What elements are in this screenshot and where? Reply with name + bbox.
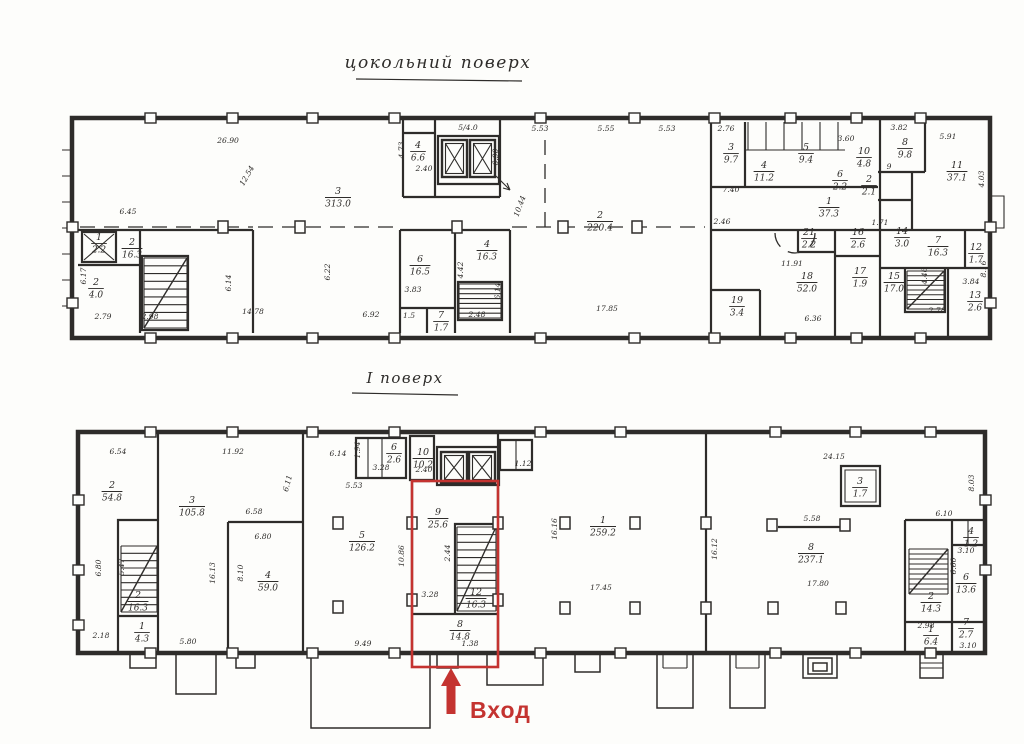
- svg-text:8: 8: [808, 542, 814, 553]
- wall-pilaster: [73, 495, 84, 505]
- room-label: 39.7: [723, 142, 739, 166]
- svg-text:237.1: 237.1: [797, 556, 824, 566]
- first-floor-internal-walls: [118, 432, 985, 653]
- svg-text:2.1: 2.1: [861, 188, 876, 198]
- structural-column: [558, 221, 568, 233]
- svg-text:12: 12: [970, 242, 982, 253]
- wall-pilaster: [851, 333, 862, 343]
- wall-pilaster: [307, 113, 318, 123]
- wall-pilaster: [535, 648, 546, 658]
- structural-column: [560, 602, 570, 614]
- svg-text:37.3: 37.3: [819, 210, 839, 220]
- svg-text:21: 21: [802, 227, 815, 238]
- dimension-label: 5.91: [940, 132, 957, 141]
- svg-text:1.7: 1.7: [853, 490, 868, 500]
- floor-plan-drawing: цокольний поверх І поверх: [0, 0, 1024, 744]
- room-label: 411.2: [754, 160, 775, 184]
- dimension-label: 4.73: [397, 141, 406, 159]
- svg-text:1.9: 1.9: [853, 280, 868, 290]
- svg-text:2.2: 2.2: [91, 246, 107, 256]
- dimension-label: 3.10: [960, 641, 977, 650]
- wall-pilaster: [629, 113, 640, 123]
- svg-text:6: 6: [391, 442, 397, 453]
- wall-pilaster: [227, 333, 238, 343]
- first-floor-title-underline: [352, 393, 458, 395]
- dimension-label: 26.90: [216, 136, 239, 145]
- wall-pilaster: [629, 333, 640, 343]
- svg-text:6: 6: [417, 254, 423, 265]
- dimension-label: 3.84: [963, 277, 980, 286]
- wall-pilaster: [67, 298, 78, 308]
- dimension-label: 5.53: [346, 481, 363, 490]
- svg-text:5: 5: [359, 530, 365, 541]
- svg-text:2.6: 2.6: [967, 304, 983, 314]
- dimension-label: 7.40: [723, 185, 740, 194]
- svg-text:9.8: 9.8: [898, 151, 913, 161]
- room-label: 1216.3: [466, 587, 487, 611]
- dimension-label: 2.18: [92, 631, 110, 640]
- dimension-label: 12.54: [238, 164, 257, 187]
- wall-pilaster: [227, 113, 238, 123]
- svg-text:2: 2: [128, 237, 135, 248]
- svg-text:16: 16: [852, 227, 864, 238]
- svg-text:220.4: 220.4: [586, 224, 613, 234]
- first-floor-labels: 254.83105.8459.0216.314.35126.262.61010.…: [92, 441, 979, 650]
- room-label: 212.2: [801, 227, 817, 251]
- room-label: 104.8: [856, 146, 872, 170]
- dimension-label: 1.71: [872, 218, 889, 227]
- dimension-label: 17.80: [807, 579, 829, 588]
- dimension-label: 2.76: [717, 124, 735, 133]
- wall-pilaster: [980, 565, 991, 575]
- room-label: 459.0: [258, 570, 279, 594]
- dimension-label: 2.46: [713, 217, 731, 226]
- room-label: 616.5: [410, 254, 431, 278]
- structural-column: [560, 517, 570, 529]
- dimension-label: 10.44: [512, 194, 528, 218]
- room-label: 1517.0: [884, 271, 905, 295]
- dimension-label: 11.91: [781, 259, 803, 268]
- svg-text:7: 7: [963, 617, 970, 628]
- first-floor-detail-lines: [368, 438, 968, 545]
- entrance-label: Вход: [470, 697, 531, 723]
- dimension-label: 5.53: [532, 124, 549, 133]
- svg-text:3: 3: [728, 142, 734, 153]
- room-label: 1259.2: [589, 515, 616, 539]
- dimension-label: 6.54: [110, 447, 127, 456]
- svg-text:14.3: 14.3: [921, 605, 941, 615]
- room-label: 22.1: [861, 174, 877, 198]
- svg-text:2.7: 2.7: [958, 631, 974, 641]
- svg-text:4.3: 4.3: [134, 635, 150, 645]
- dimension-label: 2.98: [917, 621, 935, 630]
- dimension-label: 2.79: [94, 312, 112, 321]
- dimension-label: 2.98: [141, 312, 159, 321]
- wall-pilaster: [73, 620, 84, 630]
- wall-pilaster: [389, 427, 400, 437]
- wall-pilaster: [389, 648, 400, 658]
- dimension-label: 2.44: [443, 544, 452, 562]
- svg-text:13.6: 13.6: [956, 586, 976, 596]
- wall-pilaster: [770, 427, 781, 437]
- wall-pilaster: [785, 333, 796, 343]
- dimension-label: 3.10: [958, 546, 975, 555]
- dimension-label: 6.36: [805, 314, 822, 323]
- dimension-label: 6.60: [949, 557, 958, 574]
- svg-text:1: 1: [600, 515, 606, 526]
- structural-column: [840, 519, 850, 531]
- wall-pilaster: [615, 427, 626, 437]
- svg-text:54.8: 54.8: [102, 494, 122, 504]
- dimension-label: 6.80: [94, 559, 103, 576]
- svg-text:2.2: 2.2: [801, 241, 817, 251]
- room-label: 62.6: [386, 442, 402, 466]
- wall-pilaster: [307, 333, 318, 343]
- svg-text:8: 8: [457, 619, 463, 630]
- dimension-label: 17.85: [596, 304, 618, 313]
- svg-text:11: 11: [951, 160, 963, 171]
- room-label: 71.7: [433, 310, 449, 334]
- room-label: 3105.8: [179, 495, 205, 519]
- svg-text:2: 2: [108, 480, 115, 491]
- svg-text:12: 12: [470, 587, 482, 598]
- dimension-label: 4.03: [977, 170, 986, 188]
- room-label: 8237.1: [797, 542, 824, 566]
- room-label: 132.6: [967, 290, 983, 314]
- svg-text:16.3: 16.3: [928, 249, 948, 259]
- dimension-label: 5.80: [180, 637, 197, 646]
- svg-text:52.0: 52.0: [797, 285, 817, 295]
- svg-text:25.6: 25.6: [427, 521, 448, 531]
- dimension-label: 16.16: [550, 518, 559, 540]
- dimension-label: 5.53: [659, 124, 676, 133]
- wall-pilaster: [73, 565, 84, 575]
- dimension-label: 6.22: [323, 263, 332, 280]
- wall-pilaster: [535, 113, 546, 123]
- dimension-label: 2.78: [928, 306, 946, 315]
- wall-pilaster: [145, 648, 156, 658]
- room-label: 2220.4: [586, 210, 613, 234]
- staircase: [909, 549, 948, 594]
- room-label: 72.7: [958, 617, 974, 641]
- structural-column: [632, 221, 642, 233]
- dimension-label: 1.12: [515, 459, 532, 468]
- svg-text:13: 13: [969, 290, 981, 301]
- dimension-label: 5.55: [598, 124, 615, 133]
- dimension-label: 10.86: [397, 545, 406, 567]
- dimension-label: 6.14: [224, 274, 233, 291]
- wall-pilaster: [850, 648, 861, 658]
- wall-pilaster: [925, 648, 936, 658]
- structural-column: [767, 519, 777, 531]
- svg-text:3.0: 3.0: [895, 240, 910, 250]
- room-label: 171.9: [852, 266, 868, 290]
- dimension-label: 8.10: [236, 564, 245, 581]
- room-label: 143.0: [894, 226, 910, 250]
- svg-text:4.0: 4.0: [88, 291, 104, 301]
- dimension-label: 8.16: [979, 260, 988, 277]
- room-label: 1852.0: [797, 271, 818, 295]
- wall-pilaster: [145, 427, 156, 437]
- svg-text:6.4: 6.4: [924, 638, 939, 648]
- svg-text:7: 7: [935, 235, 942, 246]
- svg-text:9.4: 9.4: [799, 156, 814, 166]
- svg-text:5: 5: [803, 142, 809, 153]
- wall-pilaster: [785, 113, 796, 123]
- dimension-label: 4.46: [920, 267, 929, 285]
- room-label: 1137.1: [947, 160, 968, 184]
- wall-pilaster: [915, 333, 926, 343]
- dimension-label: 3.60: [838, 134, 855, 143]
- dimension-label: 11.92: [222, 447, 244, 456]
- wall-pilaster: [615, 648, 626, 658]
- svg-text:313.0: 313.0: [325, 200, 351, 210]
- dimension-label: 1.5: [403, 311, 415, 320]
- dimension-label: 16.13: [208, 562, 217, 584]
- svg-text:16.3: 16.3: [122, 251, 142, 261]
- svg-text:4: 4: [760, 160, 767, 171]
- room-label: 193.4: [729, 295, 745, 319]
- svg-text:17.0: 17.0: [884, 285, 904, 295]
- dimension-label: 5.47: [117, 558, 126, 575]
- svg-text:9.7: 9.7: [724, 156, 739, 166]
- wall-pilaster: [227, 648, 238, 658]
- dimension-label: 8.03: [967, 474, 976, 491]
- wall-pilaster: [389, 333, 400, 343]
- wall-pilaster: [227, 427, 238, 437]
- wall-pilaster: [307, 648, 318, 658]
- dimension-label: 6.14: [330, 449, 347, 458]
- svg-text:3: 3: [857, 476, 863, 487]
- wall-pilaster: [980, 495, 991, 505]
- svg-text:2.6: 2.6: [850, 241, 866, 251]
- svg-text:3: 3: [335, 186, 341, 197]
- svg-text:16.5: 16.5: [410, 268, 430, 278]
- structural-column: [333, 517, 343, 529]
- dimension-label: 9: [887, 162, 892, 171]
- dimension-label: 2.40: [415, 465, 433, 474]
- dimension-label: 3.28: [422, 590, 439, 599]
- room-label: 613.6: [956, 572, 977, 596]
- dimension-label: 2.40: [415, 164, 433, 173]
- svg-text:16.3: 16.3: [477, 253, 497, 263]
- dimension-label: 2.48: [468, 310, 486, 319]
- svg-text:6.6: 6.6: [411, 154, 426, 164]
- svg-text:2.2: 2.2: [832, 183, 848, 193]
- structural-column: [333, 601, 343, 613]
- dimension-label: 3.83: [405, 285, 422, 294]
- svg-text:1: 1: [139, 621, 145, 632]
- structural-column: [836, 602, 846, 614]
- dimension-label: 16.12: [710, 538, 719, 560]
- basement-title: цокольний поверх: [345, 53, 532, 73]
- svg-text:2: 2: [134, 590, 141, 601]
- dimension-label: 1.38: [462, 639, 479, 648]
- structural-column: [768, 602, 778, 614]
- exterior-porches: [130, 653, 943, 728]
- room-label: 254.8: [102, 480, 123, 504]
- svg-text:1: 1: [96, 232, 102, 243]
- wall-pilaster: [770, 648, 781, 658]
- wall-pilaster: [535, 333, 546, 343]
- basement-title-underline: [356, 79, 522, 81]
- structural-column: [630, 602, 640, 614]
- svg-text:2: 2: [927, 591, 934, 602]
- svg-text:4: 4: [414, 140, 421, 151]
- room-label: 162.6: [850, 227, 866, 251]
- dimension-label: 6.10: [936, 509, 953, 518]
- dimension-label: 24.15: [822, 452, 845, 461]
- wall-pilaster: [307, 427, 318, 437]
- fixtures-layer: [67, 113, 996, 658]
- room-label: 5126.2: [349, 530, 375, 554]
- wall-pilaster: [535, 427, 546, 437]
- elevator-shaft: [441, 452, 467, 483]
- svg-text:259.2: 259.2: [589, 529, 616, 539]
- wall-pilaster: [925, 427, 936, 437]
- room-label: 14.3: [134, 621, 150, 645]
- dimension-label: 6.17: [79, 267, 88, 284]
- svg-text:2: 2: [92, 277, 99, 288]
- dimension-label: 6.14: [493, 282, 502, 299]
- wall-pilaster: [709, 333, 720, 343]
- svg-text:14: 14: [896, 226, 908, 237]
- dimension-label: 6.80: [255, 532, 272, 541]
- dimension-label: 4.42: [456, 261, 465, 279]
- room-label: 925.6: [427, 507, 448, 531]
- dimension-label: 5.58: [804, 514, 821, 523]
- room-label: 137.3: [819, 196, 840, 220]
- svg-text:9: 9: [435, 507, 441, 518]
- room-label: 3313.0: [325, 186, 351, 210]
- svg-text:4.8: 4.8: [856, 160, 872, 170]
- wall-pilaster: [850, 427, 861, 437]
- elevator-shaft: [469, 452, 495, 483]
- svg-text:8: 8: [902, 137, 908, 148]
- wall-pilaster: [915, 113, 926, 123]
- wall-pilaster: [67, 222, 78, 232]
- wall-pilaster: [145, 333, 156, 343]
- wall-pilaster: [985, 222, 996, 232]
- room-label: 24.0: [88, 277, 104, 301]
- wall-pilaster: [985, 298, 996, 308]
- svg-text:2: 2: [865, 174, 872, 185]
- dimension-label: 6.90: [491, 148, 500, 165]
- dimension-label: 6.92: [363, 310, 380, 319]
- svg-text:19: 19: [731, 295, 743, 306]
- svg-text:6: 6: [963, 572, 969, 583]
- staircase: [121, 546, 157, 612]
- wall-pilaster: [145, 113, 156, 123]
- svg-text:2: 2: [596, 210, 603, 221]
- svg-text:4: 4: [967, 526, 974, 537]
- svg-text:7: 7: [438, 310, 445, 321]
- room-label: 46.6: [410, 140, 426, 164]
- svg-text:105.8: 105.8: [179, 509, 205, 519]
- dimension-label: 5/4.0: [458, 123, 478, 132]
- dimension-label: 6.11: [281, 474, 294, 493]
- dimension-label: 9.49: [355, 639, 372, 648]
- svg-text:3: 3: [189, 495, 195, 506]
- room-label: 59.4: [798, 142, 814, 166]
- structural-column: [701, 602, 711, 614]
- room-label: 62.2: [832, 169, 848, 193]
- dimension-label: 17.45: [590, 583, 612, 592]
- svg-text:18: 18: [801, 271, 813, 282]
- room-label: 12.2: [91, 232, 107, 256]
- svg-text:59.0: 59.0: [258, 584, 278, 594]
- dimension-label: 3.82: [891, 123, 908, 132]
- structural-column: [452, 221, 462, 233]
- scanned-floor-plan-sheet: цокольний поверх І поверх: [0, 0, 1024, 744]
- wall-pilaster: [389, 113, 400, 123]
- dimension-label: 3.28: [373, 463, 390, 472]
- dimension-label: 14.78: [242, 307, 264, 316]
- svg-text:11.2: 11.2: [754, 174, 774, 184]
- svg-text:1: 1: [826, 196, 832, 207]
- first-floor-title: І поверх: [365, 369, 443, 387]
- svg-text:17: 17: [854, 266, 867, 277]
- svg-text:10: 10: [417, 447, 429, 458]
- basement-labels: 12.224.0216.33313.046.6616.5416.371.7222…: [79, 123, 988, 334]
- svg-text:16.3: 16.3: [128, 604, 148, 614]
- svg-text:126.2: 126.2: [349, 544, 375, 554]
- elevator-shaft: [442, 140, 467, 177]
- svg-text:37.1: 37.1: [947, 174, 967, 184]
- svg-text:6: 6: [837, 169, 843, 180]
- dimension-label: 1.94: [353, 441, 362, 458]
- entrance-arrow-icon: [441, 668, 461, 714]
- wall-pilaster: [709, 113, 720, 123]
- structural-column: [218, 221, 228, 233]
- structural-column: [630, 517, 640, 529]
- dimension-label: 6.45: [120, 207, 137, 216]
- wall-pilaster: [851, 113, 862, 123]
- svg-text:15: 15: [888, 271, 900, 282]
- svg-text:1.7: 1.7: [434, 324, 449, 334]
- room-label: 89.8: [897, 137, 913, 161]
- svg-text:4: 4: [264, 570, 271, 581]
- room-label: 716.3: [928, 235, 949, 259]
- dimension-label: 6.58: [246, 507, 263, 516]
- svg-text:10: 10: [858, 146, 870, 157]
- room-label: 416.3: [477, 239, 498, 263]
- structural-column: [701, 517, 711, 529]
- structural-column: [295, 221, 305, 233]
- room-label: 31.7: [852, 476, 868, 500]
- svg-text:4: 4: [483, 239, 490, 250]
- svg-text:16.3: 16.3: [466, 601, 486, 611]
- svg-text:3.4: 3.4: [730, 309, 745, 319]
